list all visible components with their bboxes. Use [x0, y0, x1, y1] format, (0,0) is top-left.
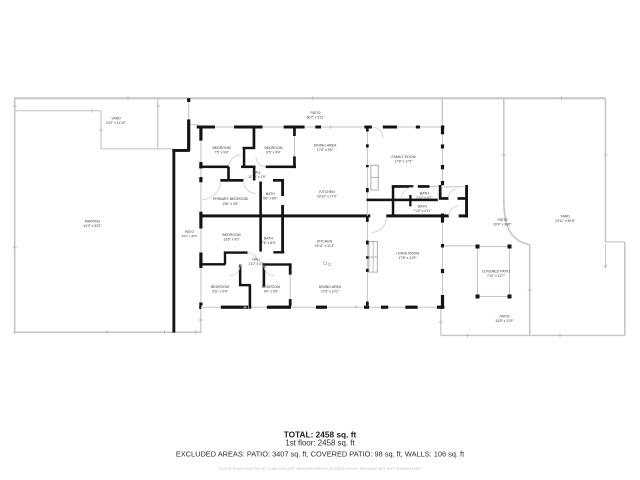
svg-text:41'0" x 53'3": 41'0" x 53'3" — [83, 224, 102, 228]
svg-text:9'11" x 9'9": 9'11" x 9'9" — [212, 289, 229, 293]
svg-text:HALL: HALL — [252, 257, 261, 261]
svg-text:17'8" x 17'2": 17'8" x 17'2" — [394, 160, 413, 164]
svg-text:1'10" x 3'5": 1'10" x 3'5" — [248, 262, 265, 266]
svg-text:20'4" x 34'6": 20'4" x 34'6" — [493, 223, 512, 227]
svg-text:7'10" x 4'11": 7'10" x 4'11" — [414, 209, 433, 213]
svg-text:PARKING: PARKING — [85, 220, 101, 224]
svg-text:YARD: YARD — [560, 215, 570, 219]
svg-text:BATH: BATH — [266, 192, 276, 196]
svg-text:56'2" x 5'11": 56'2" x 5'11" — [307, 116, 326, 120]
svg-text:17'8" x 21'9": 17'8" x 21'9" — [398, 256, 417, 260]
svg-text:BATH: BATH — [264, 236, 274, 240]
svg-text:1st floor: 2458 sq. ft: 1st floor: 2458 sq. ft — [285, 439, 355, 448]
svg-text:PATIO: PATIO — [500, 315, 510, 319]
svg-text:FAMILY ROOM: FAMILY ROOM — [392, 155, 416, 159]
svg-text:BATH: BATH — [418, 204, 428, 208]
svg-text:KITCHEN: KITCHEN — [319, 190, 335, 194]
svg-text:11'10" x 3'9": 11'10" x 3'9" — [248, 175, 267, 179]
svg-text:17'8" x 9'8": 17'8" x 9'8" — [317, 148, 334, 152]
svg-text:KITCHEN: KITCHEN — [317, 239, 333, 243]
svg-text:7'10" x 12'7": 7'10" x 12'7" — [487, 274, 506, 278]
svg-text:BEDROOM: BEDROOM — [262, 285, 280, 289]
svg-text:BEDROOM: BEDROOM — [212, 146, 230, 150]
svg-text:15'11" x 11'3": 15'11" x 11'3" — [315, 244, 335, 248]
svg-text:7'5" x 9'4": 7'5" x 9'4" — [214, 150, 229, 154]
svg-text:HALL: HALL — [253, 170, 262, 174]
svg-text:17'8" x 10'1": 17'8" x 10'1" — [321, 289, 340, 293]
svg-text:BEDROOM: BEDROOM — [222, 233, 240, 237]
svg-text:5'6" x 8'0": 5'6" x 8'0" — [263, 196, 278, 200]
svg-text:PRIMARY BEDROOM: PRIMARY BEDROOM — [213, 197, 248, 201]
svg-text:7'6" x 8'0": 7'6" x 8'0" — [261, 241, 276, 245]
svg-text:LIVING ROOM: LIVING ROOM — [396, 252, 419, 256]
svg-text:24'2" x 11'10": 24'2" x 11'10" — [106, 121, 126, 125]
svg-text:PATIO: PATIO — [498, 218, 508, 222]
svg-text:2'10" x 5'7": 2'10" x 5'7" — [416, 196, 433, 200]
svg-text:44'0" x 40'0": 44'0" x 40'0" — [182, 234, 198, 238]
svg-text:BEDROOM: BEDROOM — [264, 146, 282, 150]
svg-text:FLOOR PLAN DRAFTED BY CUBICASA: FLOOR PLAN DRAFTED BY CUBICASA APP; MEAS… — [219, 467, 422, 471]
svg-text:YARD: YARD — [111, 116, 121, 120]
svg-text:BATH: BATH — [420, 191, 430, 195]
svg-text:DINING AREA: DINING AREA — [314, 143, 337, 147]
svg-text:COVERED PATIO: COVERED PATIO — [482, 270, 511, 274]
svg-text:EXCLUDED AREAS: PATIO: 3407 sq: EXCLUDED AREAS: PATIO: 3407 sq. ft, COVE… — [176, 450, 464, 459]
svg-text:24'8" x 21'9": 24'8" x 21'9" — [495, 319, 514, 323]
svg-text:PATIO: PATIO — [311, 111, 321, 115]
svg-text:13'6" x 9'6": 13'6" x 9'6" — [222, 202, 239, 206]
svg-text:9'5" x 9'4": 9'5" x 9'4" — [266, 150, 281, 154]
svg-text:9'6" x 9'9": 9'6" x 9'9" — [264, 289, 279, 293]
svg-text:BEDROOM: BEDROOM — [211, 285, 229, 289]
svg-text:19'10" x 17'0": 19'10" x 17'0" — [317, 194, 338, 198]
svg-text:DINING AREA: DINING AREA — [319, 285, 342, 289]
svg-text:13'6" x 9'0": 13'6" x 9'0" — [223, 238, 240, 242]
svg-text:23'11" x 50'5": 23'11" x 50'5" — [555, 219, 575, 223]
